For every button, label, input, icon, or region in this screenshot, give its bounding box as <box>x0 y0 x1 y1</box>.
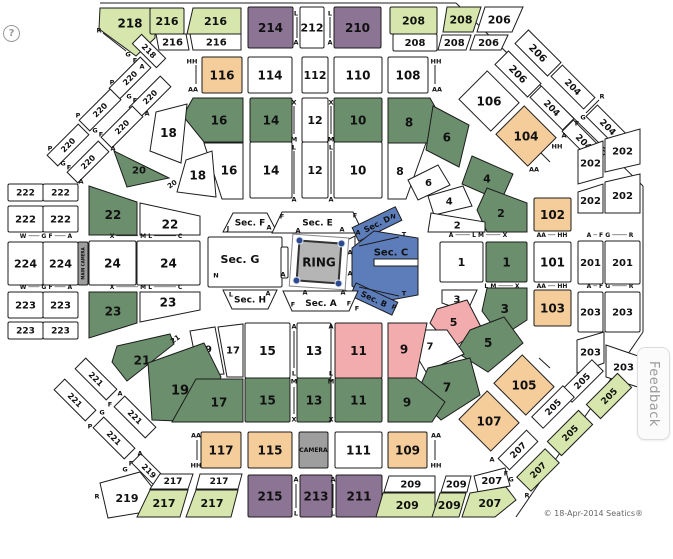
section-202-label: 202 <box>580 196 601 207</box>
row-letter: L <box>292 143 296 151</box>
row-letter: F <box>99 130 103 138</box>
row-letter: A <box>489 455 494 463</box>
section-209[interactable]: 209 <box>384 476 435 492</box>
row-letter: F <box>355 304 359 312</box>
row-letter: A <box>110 144 115 152</box>
section-1-label: 1 <box>458 256 466 269</box>
row-letter: M <box>328 377 334 385</box>
section-13[interactable]: 13 <box>297 378 331 422</box>
section-222[interactable]: 222 <box>43 184 78 201</box>
section-15[interactable]: 15 <box>245 323 290 378</box>
section-14[interactable]: 14 <box>250 98 292 142</box>
row-letter: A <box>280 270 285 278</box>
section-16-label: 16 <box>211 113 228 127</box>
section-222[interactable]: 222 <box>43 206 78 232</box>
section-2[interactable]: 2 <box>428 213 485 232</box>
row-letter: G <box>92 126 97 134</box>
section-223[interactable]: 223 <box>8 322 43 339</box>
section-24-label: 24 <box>160 256 177 270</box>
section-216-label: 216 <box>156 15 179 28</box>
row-letter: X <box>328 415 333 423</box>
section-223[interactable]: 223 <box>43 292 78 318</box>
row-letter: L <box>329 369 333 377</box>
section-217-label: 217 <box>164 477 183 487</box>
row-letter: AA ── HH <box>537 232 568 239</box>
row-letter: F <box>575 119 579 127</box>
section-7-label: 7 <box>443 381 451 395</box>
row-letter: T <box>402 289 407 297</box>
section-117-label: 117 <box>208 443 233 457</box>
section-117[interactable]: 117 <box>201 432 241 468</box>
section-216[interactable]: 216 <box>150 8 184 34</box>
section-23[interactable]: 23 <box>89 292 137 338</box>
sec-c-notch-shape <box>374 259 418 266</box>
seating-map: 2182182162162162162142122102082082082062… <box>0 0 673 559</box>
section-18-label: 18 <box>160 126 177 140</box>
section-208-label: 208 <box>402 14 425 27</box>
section-207-label: 207 <box>481 476 502 487</box>
row-letter: R <box>524 491 529 499</box>
section-111-label: 111 <box>346 443 371 457</box>
section-6-label: 6 <box>443 130 451 144</box>
section-6[interactable]: 6 <box>426 106 469 167</box>
section-10-label: 10 <box>350 113 367 127</box>
section-11[interactable]: 11 <box>335 378 382 422</box>
section-13-label: 13 <box>306 344 323 358</box>
row-letter: AA <box>529 165 539 173</box>
section-223-label: 223 <box>16 327 35 337</box>
section-217[interactable]: 217 <box>186 490 238 517</box>
row-letter: L <box>294 509 298 517</box>
section-201-label: 201 <box>580 258 601 269</box>
section-16[interactable]: 16 <box>183 98 243 142</box>
section-208[interactable]: 208 <box>390 7 437 34</box>
row-letter: G <box>60 159 65 167</box>
section-112[interactable]: 112 <box>302 57 328 93</box>
row-letter: A <box>117 389 122 397</box>
section-8-label: 8 <box>396 165 404 178</box>
row-letter: F <box>133 96 137 104</box>
row-letter: AA <box>191 431 201 439</box>
section-20[interactable]: 20 <box>114 151 169 187</box>
section-12-label: 12 <box>307 164 322 177</box>
row-letter: N <box>213 271 218 279</box>
section-sec-f-label: Sec. F <box>235 219 266 229</box>
row-letter: F <box>133 56 137 64</box>
section-212-label: 212 <box>301 21 324 34</box>
section-213-label: 213 <box>303 489 328 503</box>
row-letter: A <box>561 131 566 139</box>
section-104-label: 104 <box>513 129 538 143</box>
section-208-label: 208 <box>405 38 426 49</box>
section-102[interactable]: 102 <box>534 198 571 231</box>
section-209[interactable]: 209 <box>441 476 471 492</box>
section-17-label: 17 <box>211 395 228 409</box>
section-111[interactable]: 111 <box>335 432 382 468</box>
row-letter: AA <box>188 85 198 93</box>
section-213[interactable]: 213 <box>300 475 332 517</box>
row-letter: G <box>126 92 131 100</box>
section-22[interactable]: 22 <box>140 203 200 235</box>
main-camera-label: MAIN CAMERA <box>80 246 85 279</box>
section-217[interactable]: 217 <box>196 474 242 489</box>
boxing-ring: RING <box>289 234 348 290</box>
section-107-label: 107 <box>476 414 501 428</box>
section-209[interactable]: 209 <box>376 493 435 517</box>
section-115-label: 115 <box>257 443 282 457</box>
section-224-label: 224 <box>14 257 37 270</box>
section-222[interactable]: 222 <box>8 206 43 232</box>
row-letter: R <box>94 492 99 500</box>
section-10[interactable]: 10 <box>334 142 382 198</box>
section-9-label: 9 <box>403 395 411 409</box>
section-103[interactable]: 103 <box>534 290 571 326</box>
row-letter: AA ── HH <box>537 283 568 290</box>
section-102-label: 102 <box>540 208 565 222</box>
section-18-label: 18 <box>189 168 206 182</box>
section-110[interactable]: 110 <box>334 57 382 93</box>
section-4-label: 4 <box>446 196 453 207</box>
row-letter: P <box>88 422 93 430</box>
section-208[interactable]: 208 <box>443 7 481 32</box>
section-10-label: 10 <box>350 163 367 177</box>
section-1-label: 1 <box>502 255 510 269</box>
row-letter: M <box>291 135 297 143</box>
section-201[interactable]: 201 <box>605 241 640 284</box>
section-223[interactable]: 223 <box>43 322 78 339</box>
row-letter: W ─── G F ─── A <box>20 284 73 291</box>
row-letter: P <box>76 111 81 119</box>
section-201-label: 201 <box>612 258 633 269</box>
section-sec-g[interactable]: Sec. G <box>208 237 282 287</box>
section-209-label: 209 <box>396 499 419 512</box>
row-letter: X <box>291 415 296 423</box>
row-letter: M <box>328 135 334 143</box>
row-letter: G <box>508 475 513 483</box>
section-24-label: 24 <box>104 256 121 270</box>
row-letter: M <box>291 377 297 385</box>
section-108-label: 108 <box>395 68 420 82</box>
row-letter: HH <box>191 461 202 469</box>
row-letter: A <box>139 62 144 70</box>
row-letter: X ────── M L ────── C <box>110 233 183 240</box>
section-208-label: 208 <box>444 38 465 49</box>
section-15-label: 15 <box>259 393 276 407</box>
section-103-label: 103 <box>540 301 565 315</box>
section-217-label: 217 <box>153 497 176 510</box>
section-216[interactable]: 216 <box>190 34 241 50</box>
row-letter: A <box>328 322 333 330</box>
section-8-label: 8 <box>405 115 413 129</box>
ring-post <box>338 240 345 247</box>
section-223-label: 223 <box>51 327 70 337</box>
section-110-label: 110 <box>345 68 370 82</box>
section-116[interactable]: 116 <box>202 57 242 93</box>
section-3-label: 3 <box>501 302 509 316</box>
section-206-label: 206 <box>488 13 511 26</box>
ring-post <box>296 237 303 244</box>
row-letter: J <box>226 224 229 232</box>
section-114[interactable]: 114 <box>248 57 292 93</box>
section-203[interactable]: 203 <box>578 292 603 332</box>
row-letter: F <box>291 300 295 308</box>
section-202-label: 202 <box>612 147 633 158</box>
section-208[interactable]: 208 <box>438 35 471 50</box>
section-12-label: 12 <box>307 114 322 127</box>
section-218-label: 218 <box>117 16 142 30</box>
section-223[interactable]: 223 <box>8 292 43 318</box>
row-letter: T <box>402 230 407 238</box>
row-letter: 20 <box>166 178 179 190</box>
section-sec-e-label: Sec. E <box>302 219 333 229</box>
section-224[interactable]: 224 <box>8 242 43 285</box>
section-222[interactable]: 222 <box>8 184 43 201</box>
row-letter: L <box>229 290 233 298</box>
section-15[interactable]: 15 <box>245 378 290 422</box>
section-222-label: 222 <box>50 215 71 226</box>
section-13[interactable]: 13 <box>297 323 331 378</box>
main-camera[interactable]: MAIN CAMERA <box>78 242 88 285</box>
map-line <box>540 152 550 162</box>
row-letter: P <box>48 144 53 152</box>
section-11[interactable]: 11 <box>335 323 382 378</box>
section-222-label: 222 <box>15 215 36 226</box>
section-211-label: 211 <box>346 489 371 503</box>
section-9-label: 9 <box>400 342 408 356</box>
row-letter: A <box>302 288 307 296</box>
section-2-label: 2 <box>497 207 505 220</box>
section-5-label: 5 <box>484 336 492 350</box>
section-13-label: 13 <box>306 393 323 407</box>
section-203-label: 203 <box>580 348 601 359</box>
section-24[interactable]: 24 <box>137 241 200 285</box>
row-letter: L M ──── X <box>484 283 520 290</box>
sec-c-notch[interactable] <box>374 259 418 266</box>
section-22-label: 22 <box>105 208 122 222</box>
section-208[interactable]: 208 <box>393 34 437 51</box>
arena-map-canvas: 2182182162162162162142122102082082082062… <box>0 0 673 559</box>
section-209-label: 209 <box>446 480 467 491</box>
row-letter: A <box>266 223 271 231</box>
copyright-text: © 18-Apr-2014 Seatics® <box>544 509 643 518</box>
row-letter: AA <box>431 431 441 439</box>
section-sec-e[interactable]: Sec. E <box>272 212 363 233</box>
section-16-label: 16 <box>221 163 238 177</box>
section-207-label: 207 <box>478 497 501 510</box>
row-letter: F <box>353 211 357 219</box>
row-letter: A <box>328 195 333 203</box>
row-letter: A <box>347 269 352 277</box>
row-letter: A <box>293 38 298 46</box>
row-letter: A <box>295 226 300 234</box>
section-15-label: 15 <box>259 344 276 358</box>
section-211[interactable]: 211 <box>336 475 382 517</box>
section-221[interactable]: 221 <box>114 396 156 438</box>
camera-label: CAMERA <box>299 447 328 454</box>
section-202-label: 202 <box>580 159 601 170</box>
section-115[interactable]: 115 <box>248 432 292 468</box>
row-letter: X ────── M L ────── C <box>110 284 183 291</box>
section-23-label: 23 <box>105 305 122 319</box>
section-224[interactable]: 224 <box>43 242 78 285</box>
row-letter: F <box>280 212 284 220</box>
row-letter: R <box>599 92 604 100</box>
help-icon[interactable]: ? <box>3 25 20 42</box>
section-10[interactable]: 10 <box>334 98 382 142</box>
section-201[interactable]: 201 <box>578 241 603 284</box>
section-14[interactable]: 14 <box>250 142 292 198</box>
section-12[interactable]: 12 <box>302 98 328 142</box>
section-17-label: 17 <box>226 346 240 357</box>
section-101-label: 101 <box>540 255 565 269</box>
section-207[interactable]: 207 <box>462 487 516 517</box>
section-14-label: 14 <box>263 113 280 127</box>
row-letter: A <box>355 228 360 236</box>
section-7-label: 7 <box>427 342 434 353</box>
section-22-label: 22 <box>162 217 179 231</box>
row-letter: G <box>99 408 104 416</box>
row-letter: A <box>291 322 296 330</box>
section-108[interactable]: 108 <box>388 57 428 93</box>
section-216-label: 216 <box>162 38 183 49</box>
row-letter: P <box>110 78 115 86</box>
section-221[interactable]: 221 <box>75 358 117 400</box>
section-206-label: 206 <box>478 38 499 49</box>
section-23[interactable]: 23 <box>140 292 200 322</box>
section-sec-g-label: Sec. G <box>221 253 260 266</box>
section-202[interactable]: 202 <box>578 184 603 213</box>
section-109[interactable]: 109 <box>388 432 427 468</box>
section-222-label: 222 <box>16 189 35 199</box>
ring-label: RING <box>302 256 336 270</box>
section-212[interactable]: 212 <box>300 7 324 48</box>
section-11-label: 11 <box>350 393 367 407</box>
section-18[interactable]: 18 <box>150 104 187 163</box>
section-22[interactable]: 22 <box>89 186 137 235</box>
section-12[interactable]: 12 <box>302 142 328 198</box>
section-202-label: 202 <box>612 191 633 202</box>
row-letter: W ─── G F ─── A <box>20 233 73 240</box>
row-letter: F <box>129 459 133 467</box>
row-letter: X <box>291 98 296 106</box>
section-215[interactable]: 215 <box>248 475 292 517</box>
section-1[interactable]: 1 <box>486 242 527 282</box>
map-line <box>539 358 550 368</box>
section-203-label: 203 <box>612 308 633 319</box>
ring-post <box>293 277 300 284</box>
section-223-label: 223 <box>15 301 36 312</box>
section-221[interactable]: 221 <box>54 379 96 421</box>
section-sec-h-label: Sec. H <box>234 296 266 306</box>
section-209[interactable]: 209 <box>432 493 466 517</box>
section-206[interactable]: 206 <box>470 35 508 50</box>
row-letter: A <box>330 475 335 483</box>
section-sec-c-label: Sec. C <box>374 248 409 259</box>
row-letter: X <box>328 98 333 106</box>
section-11-label: 11 <box>350 344 367 358</box>
row-letter: L <box>294 9 298 17</box>
section-2-label: 2 <box>454 220 461 231</box>
section-109-label: 109 <box>395 443 420 457</box>
row-letter: R <box>96 26 101 34</box>
section-105-label: 105 <box>511 378 536 392</box>
row-letter: L <box>328 9 332 17</box>
row-letter: A ─ F G ──── R <box>587 232 634 239</box>
row-letter: A ─ F G ──── R <box>587 283 634 290</box>
row-letter: HH <box>431 461 442 469</box>
section-114-label: 114 <box>257 68 282 82</box>
section-219-label: 219 <box>116 492 139 505</box>
section-106-label: 106 <box>476 94 501 108</box>
section-216[interactable]: 216 <box>187 8 241 34</box>
section-217-label: 217 <box>201 497 224 510</box>
section-206[interactable]: 206 <box>477 7 523 32</box>
section-217-label: 217 <box>210 477 229 487</box>
section-18[interactable]: 18 <box>177 151 216 197</box>
section-208-label: 208 <box>450 13 473 26</box>
row-letter: F <box>108 400 112 408</box>
section-101[interactable]: 101 <box>534 242 571 282</box>
ring-post <box>335 280 342 287</box>
section-203[interactable]: 203 <box>605 292 640 332</box>
row-letter: N <box>390 212 395 220</box>
section-24[interactable]: 24 <box>89 241 136 285</box>
section-209-label: 209 <box>400 480 421 491</box>
section-202[interactable]: 202 <box>605 174 640 213</box>
row-letter: L <box>331 509 335 517</box>
section-216-label: 216 <box>206 38 227 49</box>
row-letter: A <box>265 289 270 297</box>
section-209-label: 209 <box>438 499 461 512</box>
row-letter: L <box>292 369 296 377</box>
section-23-label: 23 <box>160 295 177 309</box>
section-203-label: 203 <box>613 362 634 373</box>
row-letter: A <box>78 177 83 185</box>
section-116-label: 116 <box>209 68 234 82</box>
row-letter: HH <box>431 57 442 65</box>
section-14-label: 14 <box>263 163 280 177</box>
section-214[interactable]: 214 <box>248 7 293 48</box>
row-letter: G <box>122 465 127 473</box>
section-sec-a-label: Sec. A <box>305 299 336 309</box>
section-210[interactable]: 210 <box>334 7 381 48</box>
row-letter: HH <box>552 142 563 150</box>
section-1[interactable]: 1 <box>440 242 483 282</box>
section-221[interactable]: 221 <box>93 417 135 459</box>
row-letter: L <box>329 143 333 151</box>
section-214-label: 214 <box>258 21 283 35</box>
section-203-label: 203 <box>580 308 601 319</box>
row-letter: A <box>327 38 332 46</box>
section-5-label: 5 <box>450 316 458 329</box>
section-9[interactable]: 9 <box>388 323 427 378</box>
section-222-label: 222 <box>51 189 70 199</box>
section-112-label: 112 <box>304 69 327 82</box>
row-letter: HH <box>187 57 198 65</box>
row-letter: A <box>291 195 296 203</box>
row-letter: F <box>67 163 71 171</box>
section-20-label: 20 <box>132 166 146 177</box>
row-letter: A <box>293 475 298 483</box>
row-letter: G <box>580 113 585 121</box>
section-4-label: 4 <box>483 173 491 186</box>
camera[interactable]: CAMERA <box>299 432 328 468</box>
row-letter: A ──── L M ──── X <box>449 232 508 239</box>
feedback-tab[interactable]: Feedback <box>637 347 670 440</box>
row-letter: A <box>339 225 344 233</box>
section-216[interactable]: 216 <box>156 34 189 50</box>
row-letter: F <box>347 299 351 307</box>
